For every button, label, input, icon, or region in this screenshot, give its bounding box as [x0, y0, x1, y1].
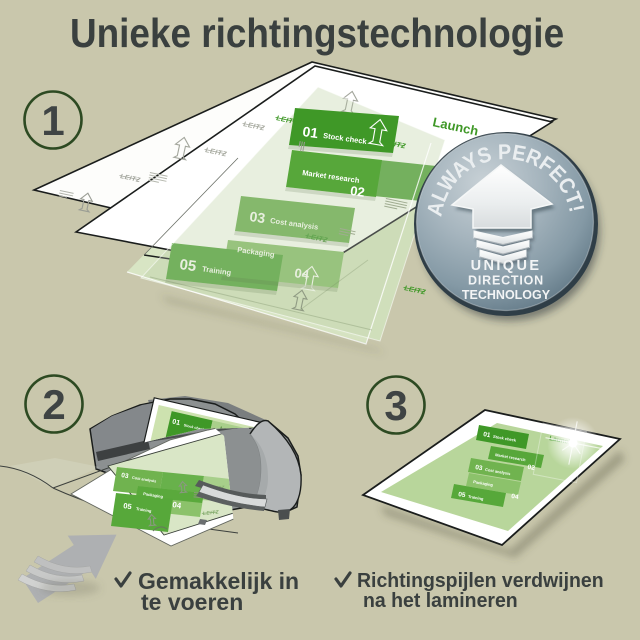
svg-text:05: 05 [123, 501, 133, 511]
svg-text:02: 02 [349, 183, 365, 200]
svg-text:2: 2 [42, 381, 65, 428]
svg-text:te voeren: te voeren [141, 589, 243, 615]
svg-text:3: 3 [384, 382, 407, 429]
svg-text:na het lamineren: na het lamineren [363, 590, 518, 613]
svg-text:01: 01 [302, 123, 320, 141]
svg-text:DIRECTION: DIRECTION [468, 274, 544, 288]
svg-text:TECHNOLOGY: TECHNOLOGY [462, 288, 551, 302]
svg-text:1: 1 [41, 97, 64, 144]
svg-text:UNIQUE: UNIQUE [471, 258, 542, 274]
svg-text:Unieke richtingstechnologie: Unieke richtingstechnologie [70, 11, 564, 56]
svg-text:03: 03 [121, 472, 130, 480]
